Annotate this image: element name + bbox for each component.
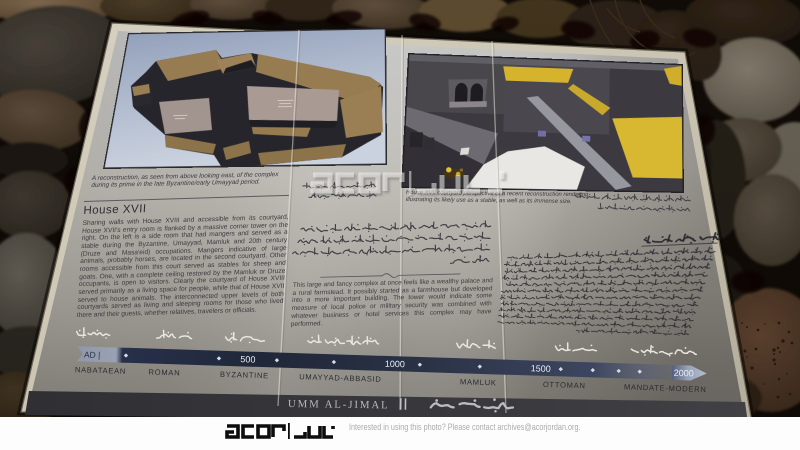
svg-text:1000: 1000 [385,359,405,370]
svg-text:1500: 1500 [531,363,551,374]
svg-text:AD |: AD | [84,349,101,360]
svg-text:2000: 2000 [674,368,694,379]
svg-text:500: 500 [240,354,255,364]
